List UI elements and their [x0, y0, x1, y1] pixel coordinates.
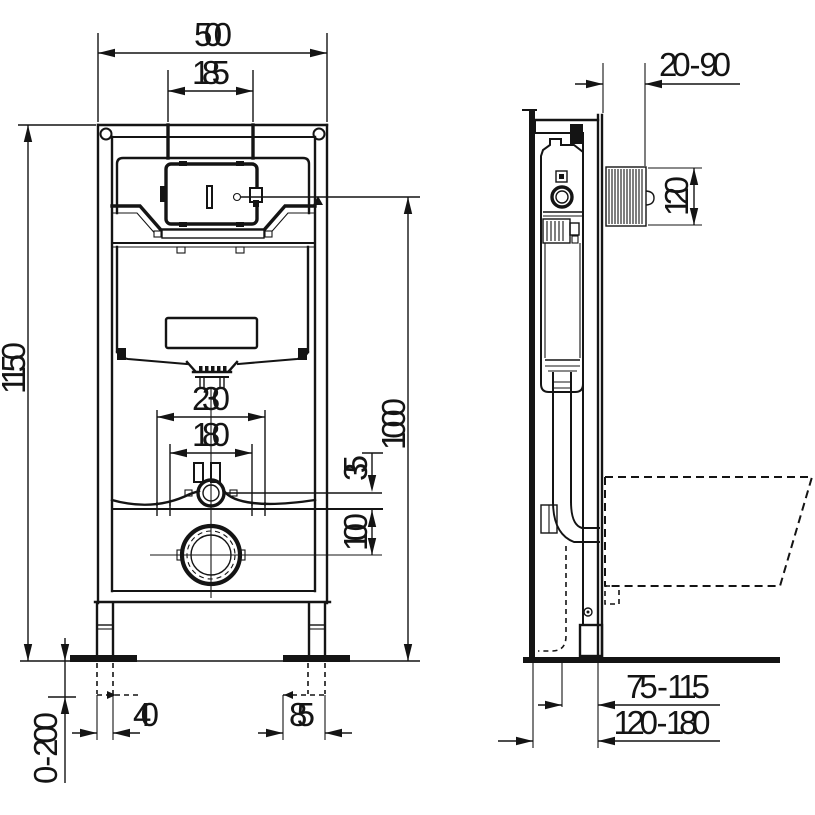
front-view: 500 185 1150 1000	[0, 16, 420, 784]
dim-label-120: 120	[658, 176, 695, 216]
dim-label-180: 180	[192, 416, 230, 453]
foot-plate-left	[70, 655, 137, 662]
window-latch-right	[250, 188, 262, 202]
corner-hole-left	[101, 129, 112, 140]
wall-bracket	[570, 124, 583, 144]
wall-section	[523, 110, 536, 661]
flush-plate-window	[160, 161, 262, 227]
cistern-side	[541, 139, 583, 392]
dim-label-120-180: 120 - 180	[614, 704, 711, 741]
dim-label-75-115: 75 - 115	[626, 668, 710, 705]
dim-100: 100	[337, 510, 376, 555]
pan-outlet-spigot	[605, 586, 619, 604]
dim-label-1150: 1150	[0, 342, 32, 394]
dim-label-1000: 1000	[375, 398, 412, 450]
dim-1150: 1150	[0, 125, 96, 661]
flush-plate-slot	[207, 186, 212, 208]
wc-frame-installation-drawing: 500 185 1150 1000	[0, 0, 815, 815]
flush-pipe	[538, 373, 599, 651]
dim-20-90: 20 - 90	[575, 46, 740, 166]
dim-label-40: 40	[133, 696, 159, 733]
dim-40: 40	[72, 695, 159, 740]
dim-120-180: 120 - 180	[498, 704, 720, 745]
dim-label-85: 85	[289, 696, 315, 733]
pushbutton-bump	[646, 191, 654, 205]
dim-label-500: 500	[194, 16, 232, 53]
dim-120: 120	[648, 168, 702, 225]
dim-label-100: 100	[337, 513, 374, 551]
corner-hole-right	[314, 129, 325, 140]
dim-185: 185	[168, 54, 253, 122]
frame-feet	[70, 591, 350, 699]
dim-label-0-200: 0 - 200	[27, 712, 64, 784]
foot-plate-right	[283, 655, 350, 662]
cistern-tank-front	[112, 243, 315, 388]
technical-drawing-sheet: 500 185 1150 1000	[0, 0, 815, 815]
window-clip-left	[160, 186, 167, 202]
waste-pipe-dashed	[538, 546, 566, 651]
dim-85: 85	[258, 695, 352, 740]
dim-label-230: 230	[192, 380, 230, 417]
dim-label-185: 185	[192, 54, 230, 91]
cistern-cover	[112, 158, 315, 238]
dim-label-20-90: 20 - 90	[659, 46, 731, 83]
dim-35: 35	[337, 453, 383, 492]
protection-box	[606, 167, 654, 226]
wc-pan-outline	[605, 477, 812, 604]
side-view: 20 - 90 120 75 - 115 120 - 180	[498, 46, 812, 748]
dim-0-200: 0 - 200	[27, 638, 76, 784]
dim-label-35: 35	[337, 455, 374, 481]
